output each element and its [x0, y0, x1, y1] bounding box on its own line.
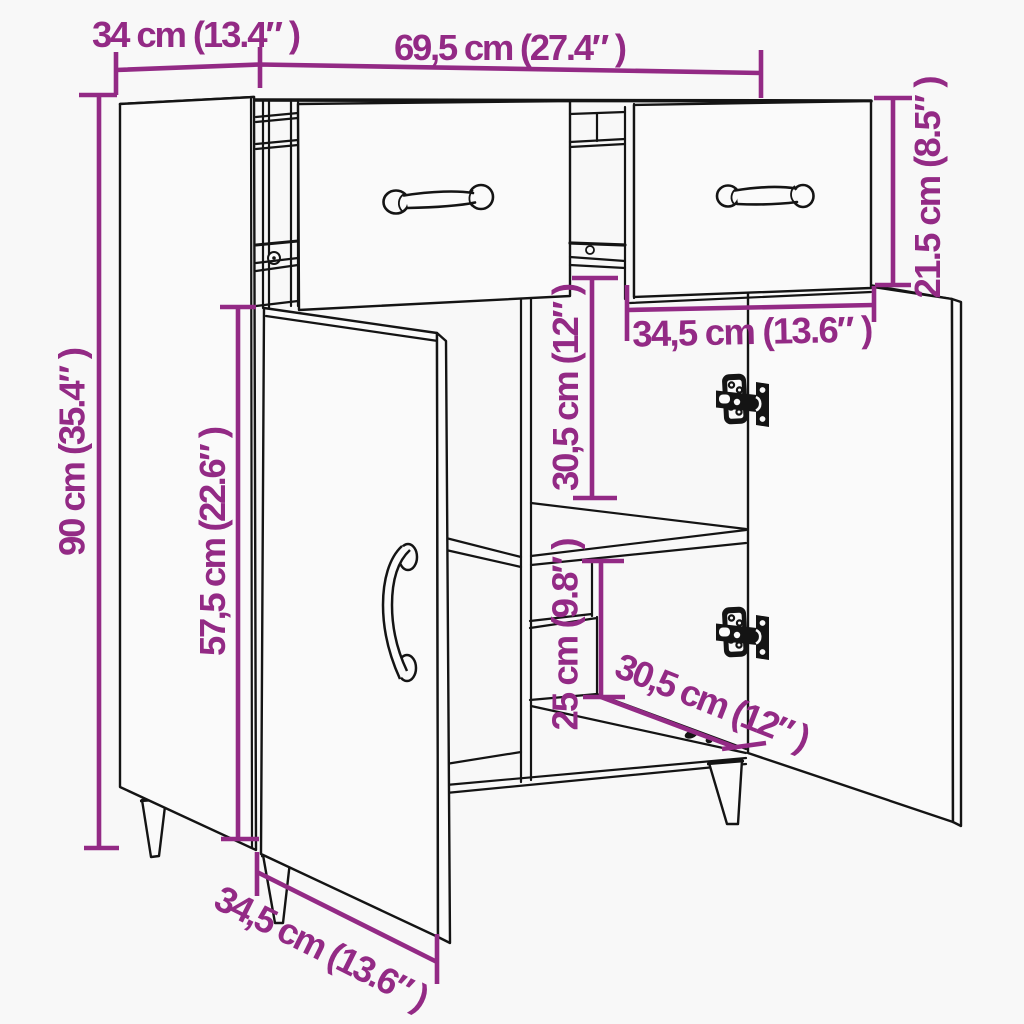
svg-text:69,5 cm (27.4″ ): 69,5 cm (27.4″ ) [394, 27, 627, 68]
svg-text:21.5 cm (8.5″ ): 21.5 cm (8.5″ ) [907, 76, 948, 299]
svg-text:34,5 cm (13.6″ ): 34,5 cm (13.6″ ) [632, 308, 874, 354]
svg-text:34 cm (13.4″ ): 34 cm (13.4″ ) [92, 14, 301, 55]
svg-text:30,5 cm (12″ ): 30,5 cm (12″ ) [545, 283, 586, 491]
svg-text:90 cm (35.4″ ): 90 cm (35.4″ ) [52, 347, 93, 556]
svg-text:25 cm (9.8″ ): 25 cm (9.8″ ) [544, 538, 585, 731]
svg-text:57,5 cm (22.6″ ): 57,5 cm (22.6″ ) [192, 426, 233, 656]
